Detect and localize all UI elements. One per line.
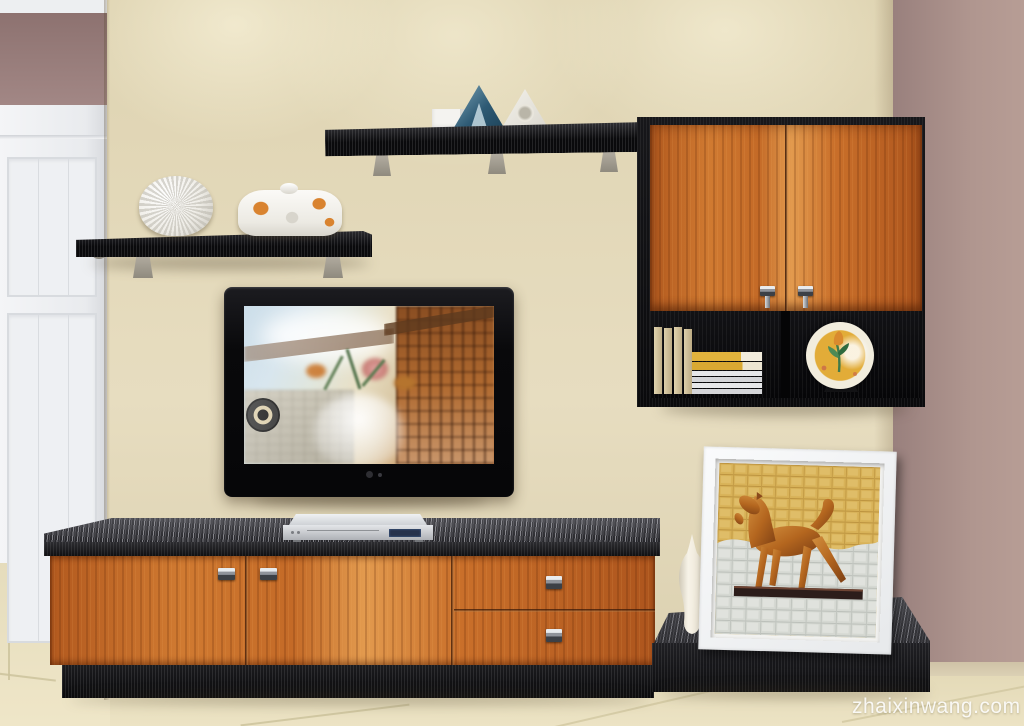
spiky-ball-ornament [139, 176, 213, 236]
white-triangle-hole [516, 104, 534, 122]
screen-gloss [244, 306, 494, 464]
wall-cabinet-door-seam [785, 125, 788, 311]
lowboard-floor-shadow [70, 694, 650, 704]
white-door [0, 105, 107, 563]
magazine-stack [692, 352, 762, 394]
watermark: zhaixinwang.com [852, 695, 1022, 721]
wall-cabinet-handle-right [798, 286, 813, 296]
book-upright-3 [674, 327, 682, 394]
magazine-spine [692, 383, 762, 388]
dvd-button [297, 531, 300, 534]
lowboard-door-handle-right [260, 568, 277, 580]
door-upper-panel [7, 157, 97, 297]
door-panel-groove [68, 159, 69, 295]
tv [224, 287, 514, 497]
tv-indicator-light [366, 471, 373, 478]
magazine-spine [692, 362, 762, 370]
lowboard-drawer-divider [454, 609, 655, 612]
door-panel-groove [38, 159, 39, 295]
dvd-top-face [289, 514, 427, 525]
dvd-front-face [283, 525, 433, 540]
door-panel-groove [38, 315, 39, 641]
book-upright-1 [654, 327, 662, 394]
horse-painting-mat [711, 459, 885, 643]
tv-screen [244, 306, 494, 464]
magazine-spine [692, 352, 762, 361]
drawer-handle-top [546, 576, 562, 589]
dish-knob [280, 183, 298, 194]
magazine-spine [692, 389, 762, 394]
horse-painting-frame [698, 446, 897, 654]
dvd-player [283, 514, 433, 544]
magazine-spine [692, 377, 762, 382]
magazine-spine [692, 371, 762, 376]
dvd-display [389, 529, 421, 537]
lowboard-top-edge [44, 542, 660, 556]
drawer-handle-bottom [546, 629, 562, 642]
lowboard-door-seam [245, 556, 248, 665]
decorative-plate [806, 322, 874, 389]
floral-covered-dish [238, 190, 342, 236]
lowboard-door-handle-left [218, 568, 235, 580]
door-head-trim [0, 135, 107, 139]
wall-cabinet-handle-left [760, 286, 775, 296]
book-upright-2 [664, 328, 672, 394]
dvd-button [291, 531, 294, 534]
wall-cabinet-handle-right-drop [803, 296, 808, 308]
dvd-tray-line [307, 530, 379, 531]
horse-painting-art [715, 463, 881, 638]
interior-render: zhaixinwang.com [0, 0, 1024, 726]
ceiling-strip [0, 0, 107, 13]
tv-indicator-light-2 [378, 473, 382, 477]
book-upright-4 [684, 329, 692, 394]
mauve-wall-top-left [0, 13, 107, 105]
wall-cabinet-handle-left-drop [765, 296, 770, 308]
plate-tulip-art [806, 322, 874, 389]
open-shelf-divider [781, 311, 790, 398]
